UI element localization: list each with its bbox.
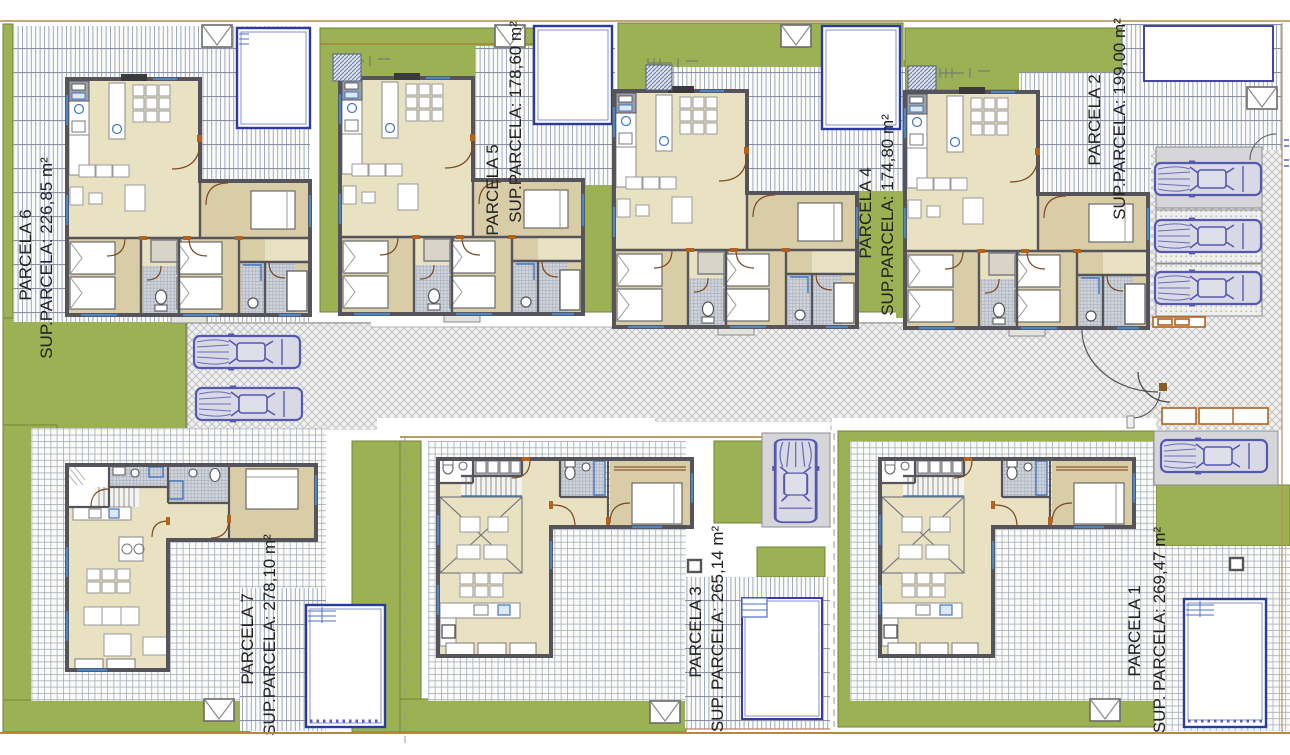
svg-text:PARCELA 7: PARCELA 7 (238, 593, 257, 684)
svg-text:PARCELA 2: PARCELA 2 (1085, 74, 1104, 165)
svg-text:SUP.PARCELA: 174,80 m²: SUP.PARCELA: 174,80 m² (878, 114, 897, 316)
svg-text:PARCELA 3: PARCELA 3 (686, 586, 705, 677)
svg-text:SUP.PARCELA: 226,85 m²: SUP.PARCELA: 226,85 m² (37, 157, 56, 359)
svg-text:SUP. PARCELA: 265,14 m²: SUP. PARCELA: 265,14 m² (708, 526, 727, 733)
svg-text:PARCELA 6: PARCELA 6 (16, 209, 35, 300)
svg-text:SUP. PARCELA: 269,47 m²: SUP. PARCELA: 269,47 m² (1150, 527, 1169, 734)
svg-text:PARCELA 1: PARCELA 1 (1125, 585, 1144, 676)
svg-text:PARCELA 4: PARCELA 4 (856, 167, 875, 258)
svg-text:SUP.PARCELA: 199,00 m²: SUP.PARCELA: 199,00 m² (1110, 18, 1129, 220)
svg-text:PARCELA 5: PARCELA 5 (483, 144, 502, 235)
svg-text:SUP.PARCELA: 278,10 m²: SUP.PARCELA: 278,10 m² (260, 534, 279, 736)
svg-text:SUP.PARCELA: 178,60 m²: SUP.PARCELA: 178,60 m² (506, 21, 525, 223)
